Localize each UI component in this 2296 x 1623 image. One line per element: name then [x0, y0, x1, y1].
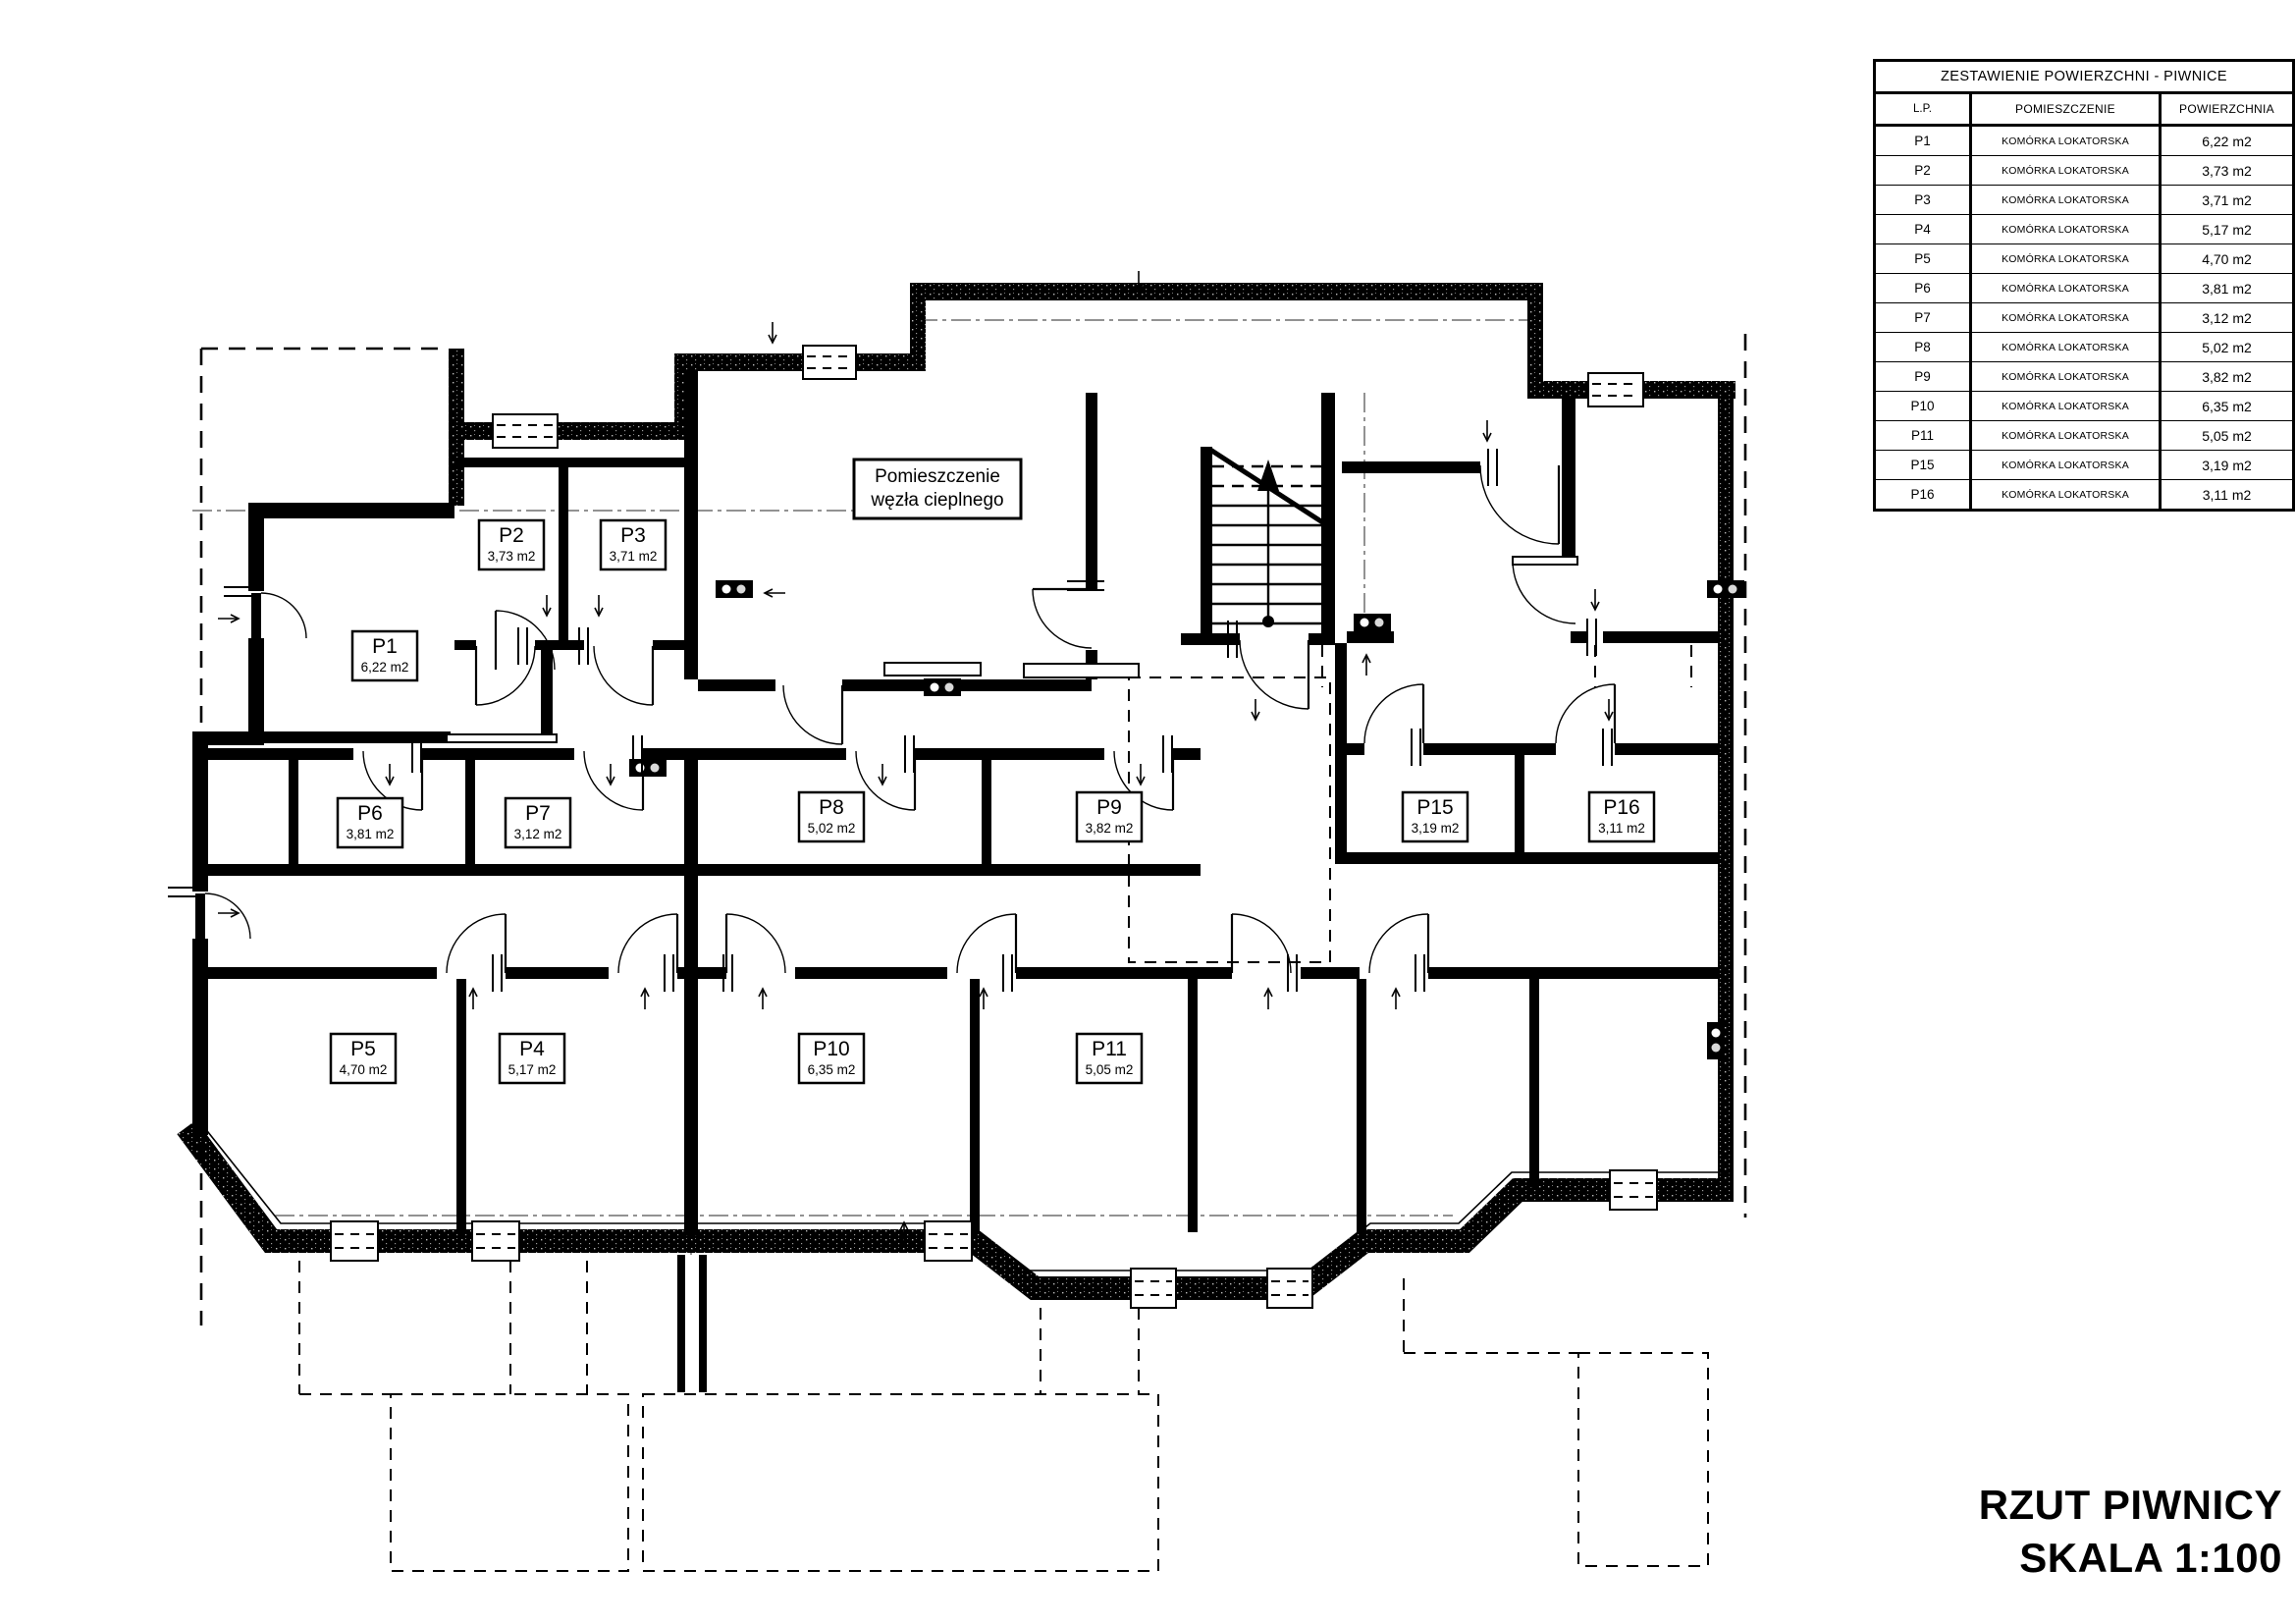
svg-text:P11: P11 [1092, 1038, 1127, 1060]
room-label-p3: P33,71 m2 [601, 520, 666, 569]
table-row: P9KOMÓRKA LOKATORSKA3,82 m2 [1876, 361, 2292, 391]
stairs [1210, 450, 1327, 627]
svg-text:Pomieszczenie: Pomieszczenie [875, 466, 1000, 487]
table-row: P4KOMÓRKA LOKATORSKA5,17 m2 [1876, 214, 2292, 243]
svg-text:3,11 m2: 3,11 m2 [1598, 821, 1645, 836]
window-symbol [1267, 1269, 1312, 1308]
room-labels: P16,22 m2 P23,73 m2 P33,71 m2 P45,17 m2 … [331, 460, 1654, 1083]
svg-text:3,12 m2: 3,12 m2 [514, 827, 562, 841]
area-table-title: ZESTAWIENIE POWIERZCHNI - PIWNICE [1876, 62, 2292, 94]
table-row: P3KOMÓRKA LOKATORSKA3,71 m2 [1876, 185, 2292, 214]
svg-text:5,17 m2: 5,17 m2 [508, 1062, 557, 1077]
window-symbol [803, 346, 856, 379]
window-symbol [331, 1221, 378, 1261]
drawing-scale: SKALA 1:100 [1979, 1532, 2282, 1585]
window-symbol [1588, 373, 1643, 406]
table-row: P10KOMÓRKA LOKATORSKA6,35 m2 [1876, 391, 2292, 420]
window-symbol [1610, 1170, 1657, 1210]
table-row: P2KOMÓRKA LOKATORSKA3,73 m2 [1876, 155, 2292, 185]
window-symbol [472, 1221, 519, 1261]
svg-text:3,71 m2: 3,71 m2 [610, 549, 658, 564]
svg-text:P8: P8 [819, 796, 844, 819]
room-label-p1: P16,22 m2 [352, 631, 417, 680]
svg-text:4,70 m2: 4,70 m2 [340, 1062, 388, 1077]
table-row: P1KOMÓRKA LOKATORSKA6,22 m2 [1876, 126, 2292, 155]
svg-text:5,05 m2: 5,05 m2 [1086, 1062, 1134, 1077]
table-row: P7KOMÓRKA LOKATORSKA3,12 m2 [1876, 302, 2292, 332]
table-row: P8KOMÓRKA LOKATORSKA5,02 m2 [1876, 332, 2292, 361]
svg-text:P1: P1 [372, 635, 398, 658]
svg-text:P9: P9 [1096, 796, 1122, 819]
room-label-p9: P93,82 m2 [1077, 792, 1142, 841]
heating-room-label: Pomieszczenie węzła cieplnego [854, 460, 1021, 518]
svg-text:węzła cieplnego: węzła cieplnego [870, 490, 1003, 511]
svg-text:6,35 m2: 6,35 m2 [808, 1062, 856, 1077]
room-label-p6: P63,81 m2 [338, 798, 402, 847]
drawing-sheet: P16,22 m2 P23,73 m2 P33,71 m2 P45,17 m2 … [0, 0, 2296, 1623]
window-symbol [925, 1221, 972, 1261]
svg-text:P6: P6 [357, 802, 383, 825]
svg-text:P4: P4 [519, 1038, 545, 1060]
svg-text:P3: P3 [620, 524, 646, 547]
svg-text:P15: P15 [1416, 796, 1453, 819]
table-row: P6KOMÓRKA LOKATORSKA3,81 m2 [1876, 273, 2292, 302]
stairs-up-arrow [1257, 460, 1279, 627]
room-label-p7: P73,12 m2 [506, 798, 570, 847]
svg-text:P10: P10 [813, 1038, 849, 1060]
svg-text:3,73 m2: 3,73 m2 [488, 549, 536, 564]
drawing-title: RZUT PIWNICY [1979, 1479, 2282, 1532]
svg-text:3,19 m2: 3,19 m2 [1412, 821, 1460, 836]
jamb-ticks [168, 449, 1612, 992]
room-label-p10: P106,35 m2 [799, 1034, 864, 1083]
svg-text:P16: P16 [1603, 796, 1639, 819]
door-arcs [205, 465, 1615, 973]
area-table-header: L.P. POMIESZCZENIE POWIERZCHNIA [1876, 94, 2292, 126]
table-row: P16KOMÓRKA LOKATORSKA3,11 m2 [1876, 479, 2292, 509]
room-label-p4: P45,17 m2 [500, 1034, 564, 1083]
svg-text:3,81 m2: 3,81 m2 [347, 827, 395, 841]
table-row: P15KOMÓRKA LOKATORSKA3,19 m2 [1876, 450, 2292, 479]
room-label-p11: P115,05 m2 [1077, 1034, 1142, 1083]
svg-text:P5: P5 [350, 1038, 376, 1060]
room-label-p2: P23,73 m2 [479, 520, 544, 569]
area-table: ZESTAWIENIE POWIERZCHNI - PIWNICE L.P. P… [1873, 59, 2295, 512]
window-symbol [1131, 1269, 1176, 1308]
room-label-p8: P85,02 m2 [799, 792, 864, 841]
svg-text:P7: P7 [525, 802, 551, 825]
svg-text:3,82 m2: 3,82 m2 [1086, 821, 1134, 836]
room-label-p5: P54,70 m2 [331, 1034, 396, 1083]
light-fixtures [629, 580, 1744, 1059]
svg-text:6,22 m2: 6,22 m2 [361, 660, 409, 675]
title-block: RZUT PIWNICY SKALA 1:100 [1979, 1479, 2282, 1585]
svg-text:5,02 m2: 5,02 m2 [808, 821, 856, 836]
room-label-p16: P163,11 m2 [1589, 792, 1654, 841]
table-row: P5KOMÓRKA LOKATORSKA4,70 m2 [1876, 243, 2292, 273]
exterior-walls [187, 283, 1735, 1288]
window-symbol [493, 414, 558, 448]
room-label-p15: P153,19 m2 [1403, 792, 1468, 841]
svg-text:P2: P2 [499, 524, 524, 547]
table-row: P11KOMÓRKA LOKATORSKA5,05 m2 [1876, 420, 2292, 450]
